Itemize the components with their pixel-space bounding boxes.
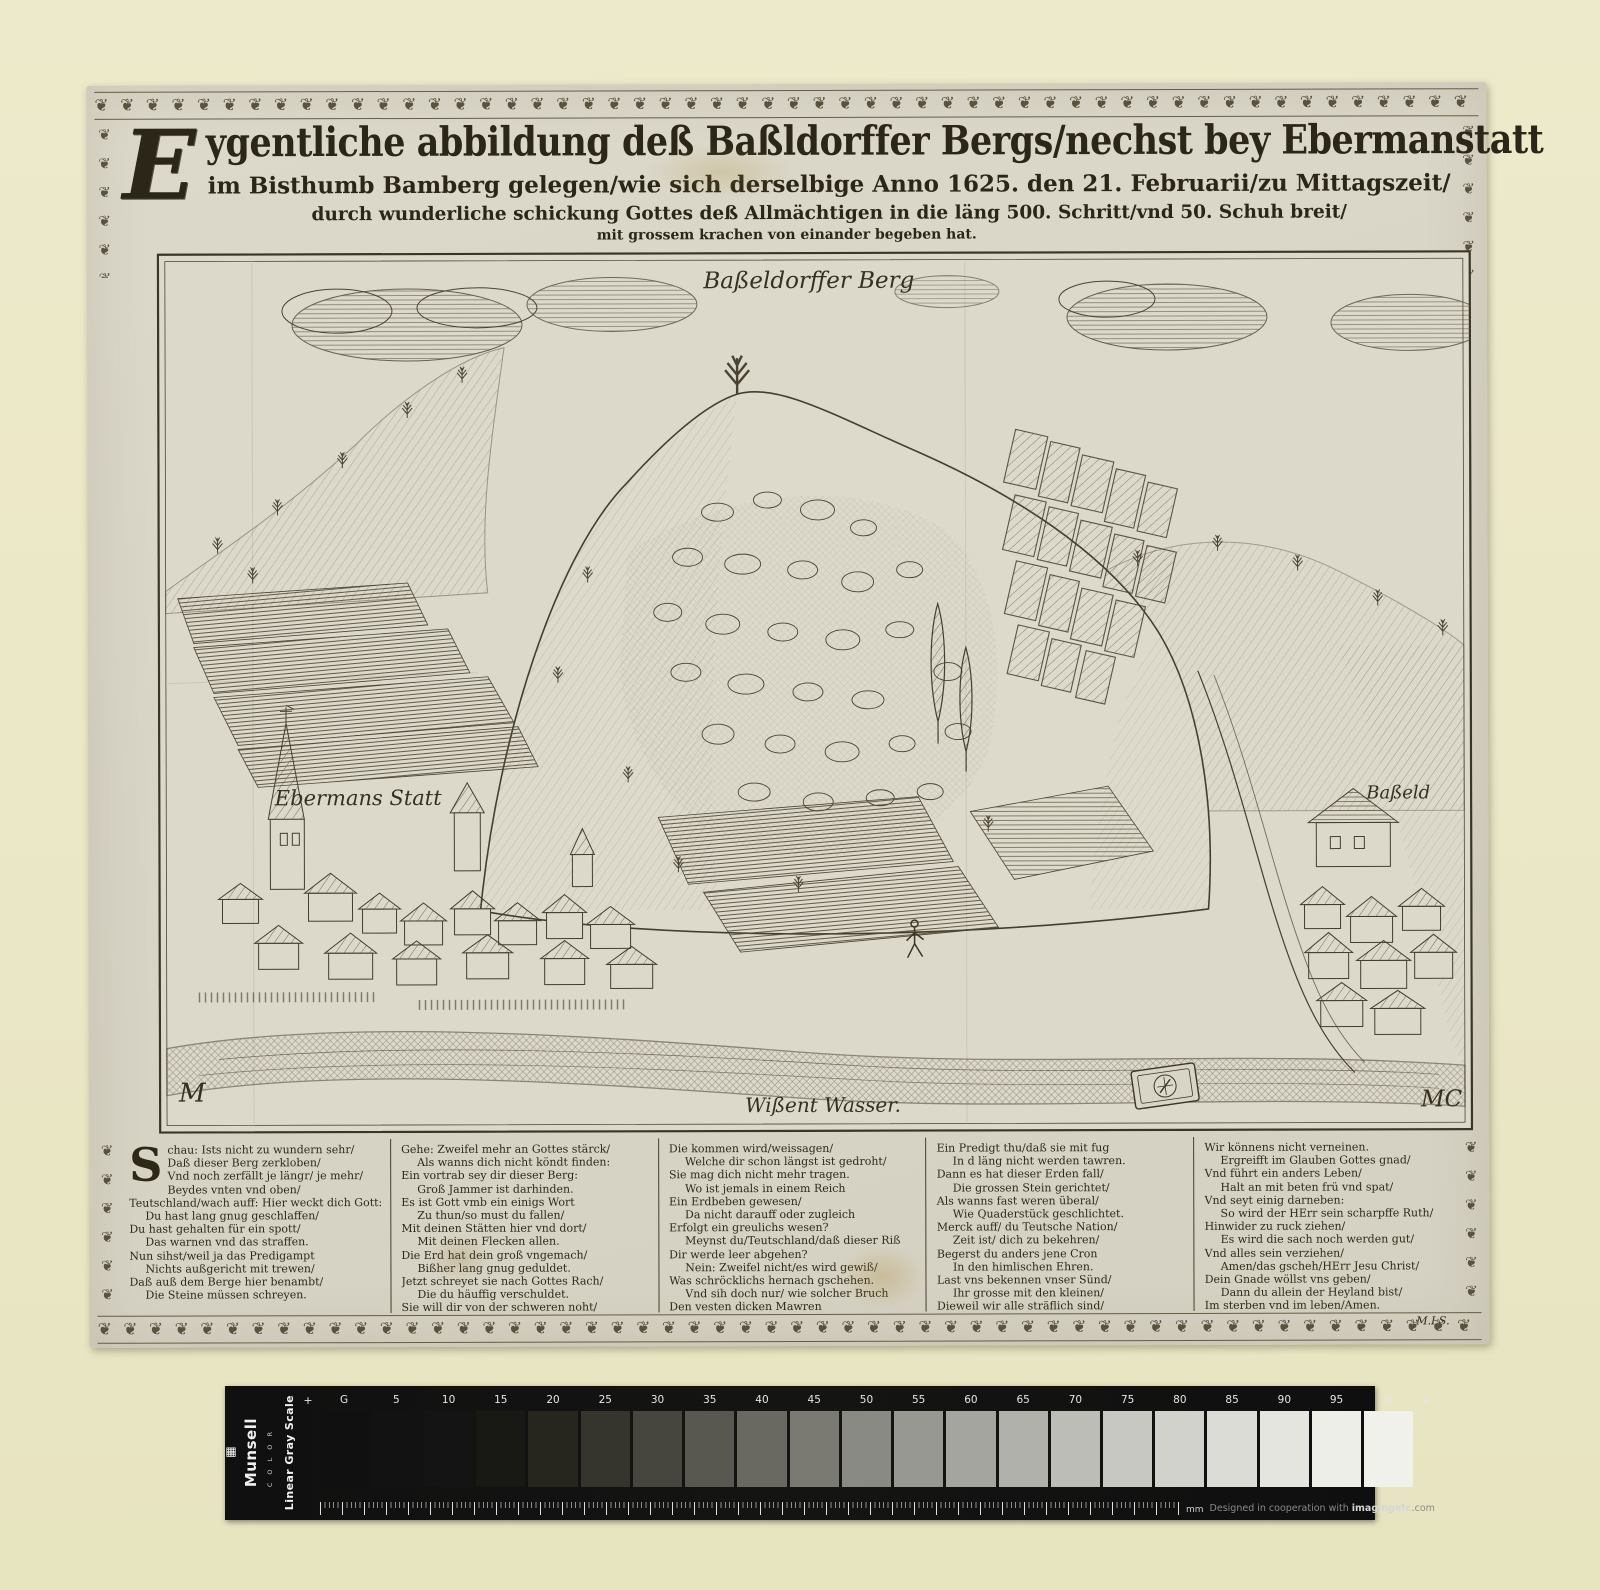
verse-line: Den vesten dicken Mawren [669,1300,918,1314]
verse-line: Nichts außgericht mit trewen/ [145,1262,382,1276]
verse-line: Das warnen vnd das straffen. [145,1235,382,1249]
verse-line: Hinwider zu ruck ziehen/ [1205,1219,1454,1233]
verse-line: Last vns bekennen vnser Sünd/ [937,1273,1186,1287]
gray-patch [476,1411,525,1487]
verse-line: Dann du allein der Heyland bist/ [1221,1285,1454,1299]
credit-brand: imagingetc [1352,1503,1412,1514]
verse-line: Merck auff/ du Teutsche Nation/ [937,1220,1186,1234]
verse-column-1: S chau: Ists nicht zu wundern sehr/Daß d… [119,1139,390,1314]
gray-patch [1103,1411,1152,1487]
gray-patch-label: 70 [1049,1394,1101,1406]
gray-patch [633,1411,682,1487]
verse-line: So wird der HErr sein scharpffe Ruth/ [1221,1206,1454,1220]
gray-patch-label: 90 [1258,1394,1310,1406]
verse-line: Als wanns dich nicht köndt finden: [417,1156,650,1170]
gray-patch [372,1411,421,1487]
gray-patch-label: 65 [997,1394,1049,1406]
verse-dropcap: S [129,1146,162,1185]
gray-patch-label: 30 [631,1394,683,1406]
gray-scale-labels: G5101520253035404550556065707580859095G [318,1394,1415,1406]
munsell-gray-scale-strip: ▦ Munsell C O L O R Linear Gray Scale + … [225,1386,1375,1520]
verse-line: Vnd alles sein verziehen/ [1205,1246,1454,1260]
verse-line: Sie mag dich nicht mehr tragen. [669,1168,918,1182]
verse-line: Vnd seyt einig darneben: [1204,1193,1453,1207]
verse-line: Nun sihst/weil ja das Predigampt [129,1249,382,1263]
gray-patch [999,1411,1048,1487]
gray-patch-label: 75 [1102,1394,1154,1406]
gray-scale-name: Linear Gray Scale [283,1395,296,1510]
title-line-1: ygentliche abbildung deß Baßldorffer Ber… [120,116,1452,167]
verse-line: Du hast lang gnug geschlaffen/ [145,1209,382,1223]
verse-line: Im sterben vnd im leben/Amen. [1205,1299,1454,1313]
verse-line: Mit deinen Stätten hier vnd dort/ [401,1222,650,1236]
verse-line: Meynst du/Teutschland/daß dieser Riß [685,1234,918,1248]
verse-line: Vnd führt ein anders Leben/ [1204,1167,1453,1181]
gray-patch [424,1411,473,1487]
gray-patch-label: 50 [840,1394,892,1406]
verse-line: Amen/das gscheh/HErr Jesu Christ/ [1221,1259,1454,1273]
verse-line: Dieweil wir alle sträflich sind/ [937,1299,1186,1313]
river-label: Wißent Wasser. [745,1093,901,1117]
gray-patch [528,1411,577,1487]
munsell-logo-icon: ▦ [225,1446,237,1460]
verse-block: S chau: Ists nicht zu wundern sehr/Daß d… [99,1136,1481,1314]
verse-line: Daß dieser Berg zerkloben/ [167,1156,382,1170]
verse-line: Mit deinen Flecken allen. [417,1235,650,1249]
gray-patch-label: 5 [370,1394,422,1406]
verse-line: Dann es hat dieser Erden fall/ [937,1167,1186,1181]
verse-line: Die Steine müssen schreyen. [146,1288,383,1302]
gray-patch-label: 10 [422,1394,474,1406]
verse-line: Dein Gnade wöllst vns geben/ [1205,1272,1454,1286]
registration-plus-left: + [298,1394,318,1407]
munsell-brand: Munsell [242,1418,260,1487]
gray-patch-label: 45 [788,1394,840,1406]
verse-column-4: Ein Predigt thu/daß sie mit fugIn d läng… [926,1137,1194,1312]
gray-patch-label: 15 [475,1394,527,1406]
verse-line: Wir könnens nicht verneinen. [1204,1140,1453,1154]
gray-patch [581,1411,630,1487]
munsell-color-label: C O L O R [266,1429,274,1487]
title-line-3: durch wunderliche schickung Gottes deß A… [121,201,1453,225]
gray-scale-footer: mm Designed in cooperation with imaginge… [298,1491,1435,1515]
verse-line: In den himlischen Ehren. [953,1260,1186,1274]
verse-column-5: Wir könnens nicht verneinen.Ergreifft im… [1193,1136,1461,1311]
gray-patch [1155,1411,1204,1487]
verse-line: Begerst du anders jene Cron [937,1247,1186,1261]
verse-line: Die kommen wird/weissagen/ [669,1142,918,1156]
title-block: E ygentliche abbildung deß Baßldorffer B… [120,116,1452,244]
gray-patch [946,1411,995,1487]
monogram-left: M [178,1079,207,1109]
verse-line: Als wanns fast weren überal/ [937,1194,1186,1208]
verse-line: Was schröcklichs hernach gschehen. [669,1274,918,1288]
verse-line: Zeit ist/ dich zu bekehren/ [953,1233,1186,1247]
ruler-unit-label: mm [1186,1505,1204,1515]
town-right-label: Baßeld [1365,782,1430,803]
verse-line: Erfolgt ein greulichs wesen? [669,1221,918,1235]
gray-patch-label: 85 [1206,1394,1258,1406]
verse-line: Bißher lang gnug geduldet. [417,1261,650,1275]
gray-patch-label: G [318,1394,370,1406]
ornament-border-top: ❦ ❦ ❦ ❦ ❦ ❦ ❦ ❦ ❦ ❦ ❦ ❦ ❦ ❦ ❦ ❦ ❦ ❦ ❦ ❦ … [94,88,1478,120]
gray-patch [685,1411,734,1487]
gray-patch-label: 60 [945,1394,997,1406]
monogram-right: MC [1420,1086,1463,1112]
gray-scale-body: + G5101520253035404550556065707580859095… [296,1386,1445,1520]
ornament-border-bottom: ❦ ❦ ❦ ❦ ❦ ❦ ❦ ❦ ❦ ❦ ❦ ❦ ❦ ❦ ❦ ❦ ❦ ❦ ❦ ❦ … [98,1312,1482,1344]
gray-patch [737,1411,786,1487]
mountain-label: Baßeldorffer Berg [702,268,914,295]
gray-patch [894,1411,943,1487]
verse-line: Es wird die sach noch werden gut/ [1221,1233,1454,1247]
verse-line: Da nicht darauff oder zugleich [685,1208,918,1222]
verse-line: Jetzt schreyet sie nach Gottes Rach/ [401,1274,650,1288]
gray-patch-label: 20 [527,1394,579,1406]
verse-line: Dir werde leer abgehen? [669,1247,918,1261]
verse-line: Wo ist jemals in einem Reich [685,1181,918,1195]
verse-line: Sie will dir von der schweren noht/ [402,1301,651,1315]
verse-line: Die Erd hat dein groß vngemach/ [401,1248,650,1262]
verse-line: Ein vortrab sey dir dieser Berg: [401,1169,650,1183]
gray-patch [842,1411,891,1487]
mm-ruler [320,1502,1180,1515]
gray-patch-label: G [1363,1394,1415,1406]
verse-line: Vnd noch zerfällt je längr/ je mehr/ [167,1169,382,1183]
gray-patch-label: 40 [736,1394,788,1406]
gray-patch [320,1411,369,1487]
verse-line: Es ist Gott vmb ein einigs Wort [401,1195,650,1209]
verse-line: Gehe: Zweifel mehr an Gottes stärck/ [401,1142,650,1156]
gray-patch-label: 80 [1154,1394,1206,1406]
verse-line: Welche dir schon längst ist gedroht/ [685,1155,918,1169]
verse-column-2: Gehe: Zweifel mehr an Gottes stärck/Als … [390,1138,658,1313]
verse-line: Nein: Zweifel nicht/es wird gewiß/ [685,1260,918,1274]
verse-line: Zu thun/so must du fallen/ [417,1208,650,1222]
gray-patch [1260,1411,1309,1487]
verse-line: Beydes vnten vnd oben/ [167,1183,382,1197]
verse-column-3: Die kommen wird/weissagen/Welche dir sch… [658,1138,926,1313]
verse-line: Vnd sih doch nur/ wie solcher Bruch [685,1287,918,1301]
credit-suffix: .com [1412,1503,1435,1514]
engraving-plate: Baßeldorffer Berg Ebermans Statt Baßeld … [157,250,1473,1133]
gray-patch-label: 25 [579,1394,631,1406]
gray-patch [790,1411,839,1487]
registration-plus-right: + [1415,1394,1435,1407]
verse-line: Du hast gehalten für ein spott/ [129,1222,382,1236]
ornament-border-title-left: ❦ ❦ ❦ ❦ ❦ ❦ ❦ [93,126,115,278]
gray-patch [1051,1411,1100,1487]
verse-line: Halt an mit beten frü vnd spat/ [1220,1180,1453,1194]
gray-patch [1312,1411,1361,1487]
verse-line: Die grossen Stein gerichtet/ [953,1181,1186,1195]
gray-scale-patches [318,1411,1415,1487]
verse-line: Die du häuffig verschuldet. [417,1288,650,1302]
scan-background: ❦ ❦ ❦ ❦ ❦ ❦ ❦ ❦ ❦ ❦ ❦ ❦ ❦ ❦ ❦ ❦ ❦ ❦ ❦ ❦ … [0,0,1600,1590]
verse-line: Ein Predigt thu/daß sie mit fug [937,1141,1186,1155]
gray-patch-label: 95 [1310,1394,1362,1406]
verse-line: Wie Quaderstück geschlichtet. [953,1207,1186,1221]
broadsheet-sheet: ❦ ❦ ❦ ❦ ❦ ❦ ❦ ❦ ❦ ❦ ❦ ❦ ❦ ❦ ❦ ❦ ❦ ❦ ❦ ❦ … [86,82,1489,1348]
verse-line: Teutschland/wach auff: Hier weckt dich G… [129,1196,382,1210]
compass-illustration [1131,1063,1200,1110]
credit-prefix: Designed in cooperation with [1210,1503,1352,1514]
verse-line: Ein Erdbeben gewesen/ [669,1194,918,1208]
gray-patch-label: 55 [893,1394,945,1406]
title-line-2: im Bisthumb Bamberg gelegen/wie sich der… [121,169,1453,199]
verse-line: Groß Jammer ist darhinden. [417,1182,650,1196]
scale-credit: Designed in cooperation with imagingetc.… [1210,1503,1435,1515]
verse-line: Ergreifft im Glauben Gottes gnad/ [1220,1153,1453,1167]
verse-line: Daß auß dem Berge hier benambt/ [129,1275,382,1289]
title-line-4: mit grossem krachen von einander begeben… [121,225,1453,244]
gray-patch-label: 35 [684,1394,736,1406]
verse-line: Ihr grosse mit den kleinen/ [953,1286,1186,1300]
town-left-label: Ebermans Statt [274,786,442,810]
gray-patch [1207,1411,1256,1487]
verse-line: In d läng nicht werden tawren. [953,1154,1186,1168]
gray-patch [1364,1411,1413,1487]
verse-line: chau: Ists nicht zu wundern sehr/ [167,1143,382,1157]
gray-scale-label-row: + G5101520253035404550556065707580859095… [298,1391,1435,1409]
gray-scale-patch-row [298,1411,1435,1487]
munsell-branding: ▦ Munsell C O L O R Linear Gray Scale [225,1386,296,1520]
